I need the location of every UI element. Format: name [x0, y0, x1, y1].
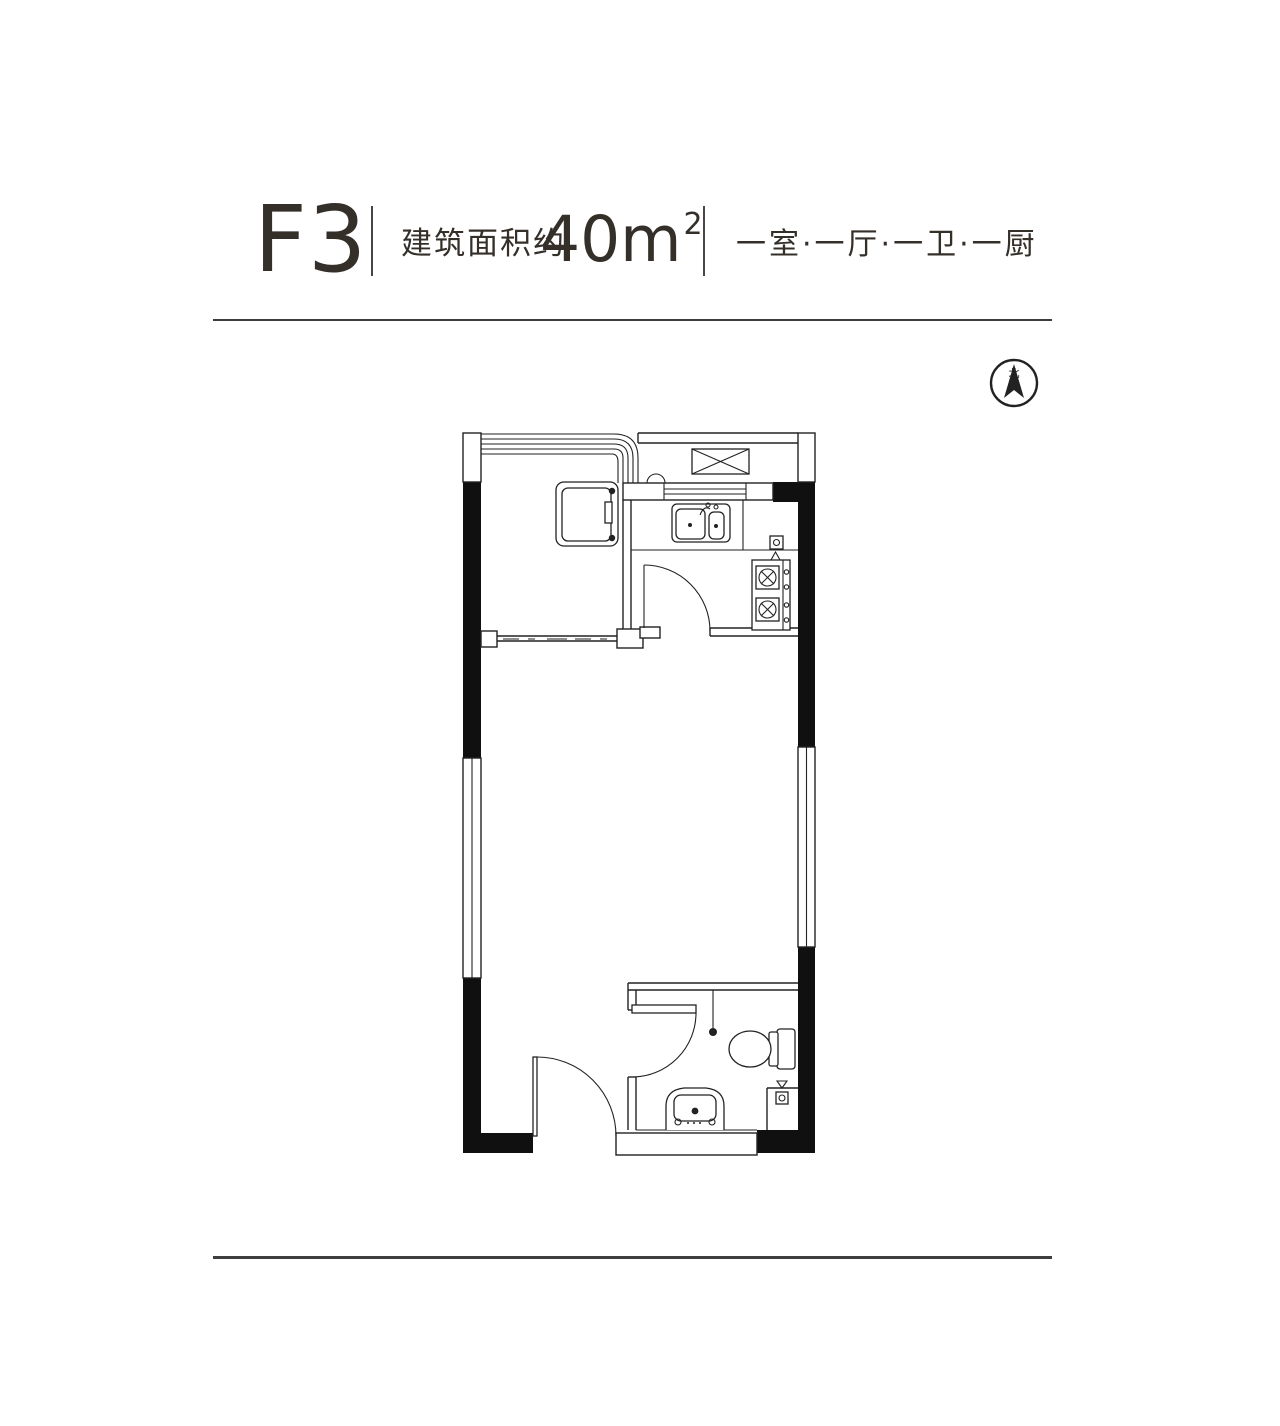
- toilet: [729, 1029, 795, 1069]
- floor-plan-page: F3 建筑面积约 40m2 一室·一厅·一卫·一厨 北: [0, 0, 1280, 1426]
- shower-point: [709, 990, 717, 1036]
- flue-box: [692, 449, 749, 474]
- wash-basin: [666, 1088, 724, 1130]
- windows: [463, 433, 815, 978]
- kitchen-window: [623, 474, 773, 500]
- kitchen-sink: [672, 503, 730, 542]
- floor-drain-marker: [777, 1081, 787, 1088]
- north-compass-icon: 北: [991, 360, 1037, 406]
- kitchen-door-arc: [644, 565, 710, 631]
- washing-machine: [556, 482, 618, 546]
- balcony-glazing: [481, 434, 638, 483]
- shower-corner: [767, 1081, 798, 1130]
- sliding-partition: [481, 629, 643, 648]
- entry-door: [533, 1057, 616, 1136]
- top-wall: [638, 433, 798, 443]
- gas-stove: [752, 560, 790, 630]
- gas-meter: [770, 536, 783, 560]
- floor-plan-svg: 北: [0, 0, 1280, 1426]
- bathroom-door-arc: [632, 1005, 696, 1077]
